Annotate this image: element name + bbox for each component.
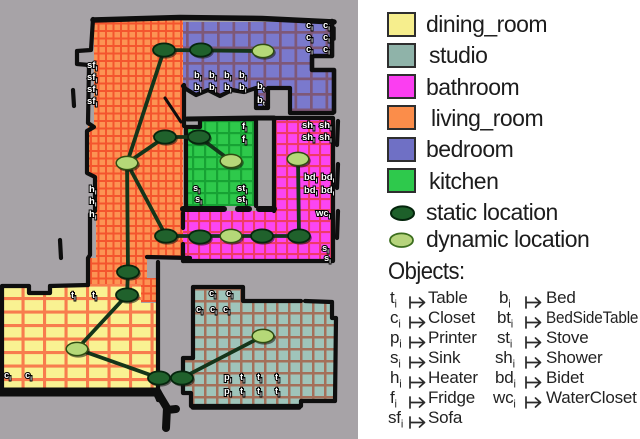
svg-text:bdi: bdi — [321, 172, 335, 185]
svg-text:bdi: bdi — [304, 185, 318, 198]
svg-text:bdi: bdi — [304, 172, 318, 185]
svg-text:wci: wci — [315, 208, 331, 221]
svg-text:bdi: bdi — [321, 185, 335, 198]
